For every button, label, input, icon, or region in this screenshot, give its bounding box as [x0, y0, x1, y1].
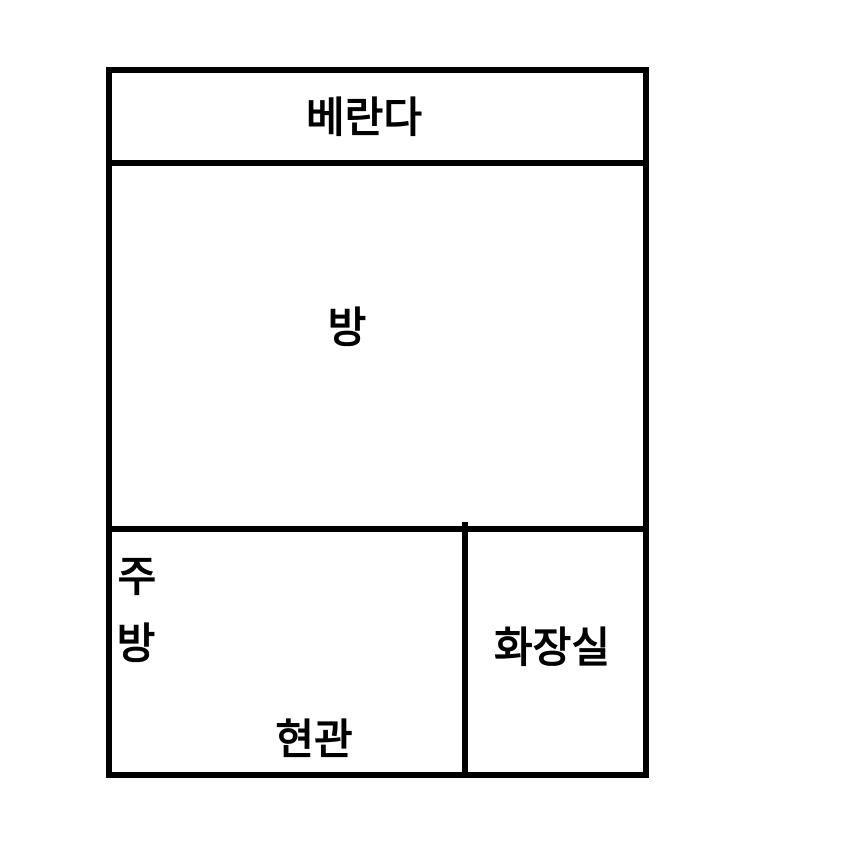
veranda-label: 베란다 [306, 97, 422, 139]
main-room-label: 방 [328, 307, 367, 349]
kitchen-label-line1: 주 [118, 556, 157, 598]
bathroom-label: 화장실 [494, 627, 610, 669]
kitchen-label-line2: 방 [117, 623, 156, 665]
floorplan: 베란다 방 주 방 현관 화장실 [0, 0, 868, 853]
main-room-area [112, 166, 643, 526]
entrance-label: 현관 [275, 719, 352, 761]
